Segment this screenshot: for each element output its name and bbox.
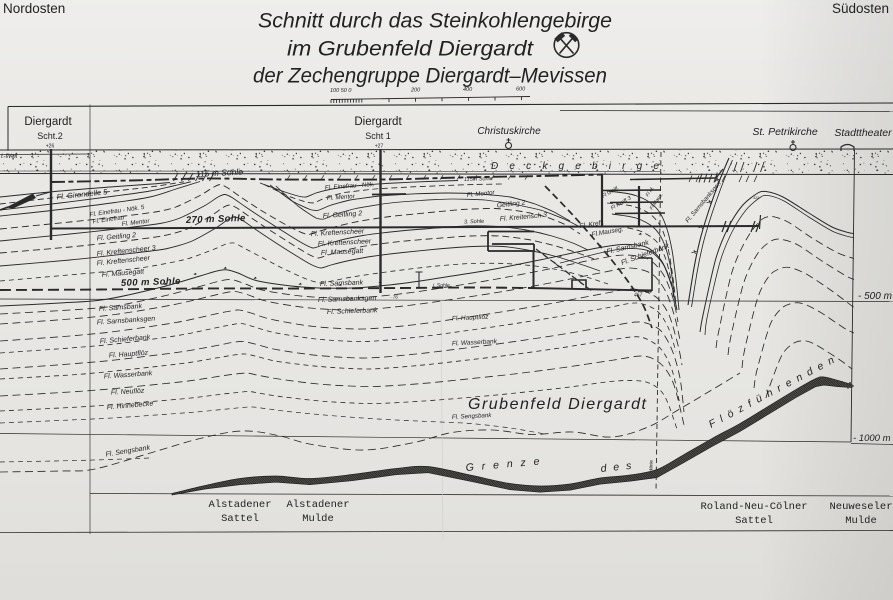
svg-text:Roland-Neu-Cölner: Roland-Neu-Cölner [700,501,807,513]
svg-text:600: 600 [516,87,526,93]
svg-text:Sattel: Sattel [221,513,259,525]
svg-text:l. Well: l. Well [1,154,18,160]
svg-text:400: 400 [463,87,473,93]
svg-text:i. Sohle: i. Sohle [433,283,450,289]
svg-text:- 1000 m: - 1000 m [853,433,891,444]
svg-text:- 76: - 76 [390,295,398,300]
svg-text:der Zechengruppe Diergardt–M: der Zechengruppe Diergardt–Mevissen [253,65,607,88]
svg-text:Nordosten: Nordosten [3,1,65,16]
svg-text:- 500 m: - 500 m [858,291,892,302]
svg-text:111: 111 [753,195,759,200]
svg-text:Alstadener: Alstadener [286,499,349,511]
svg-text:Scht 1: Scht 1 [365,131,391,141]
svg-text:Mulde: Mulde [302,513,334,525]
svg-text:Sattel: Sattel [735,515,773,527]
svg-text:141: 141 [645,289,652,294]
svg-text:270 m Sohle: 270 m Sohle [185,213,247,226]
svg-text:500 m Sohle: 500 m Sohle [121,276,182,289]
svg-text:Stadttheater: Stadttheater [834,127,892,139]
svg-text:im Grubenfeld Diergardt: im Grubenfeld Diergardt [287,38,534,61]
svg-text:Diergardt: Diergardt [24,116,72,128]
svg-text:+27: +27 [375,144,384,150]
svg-text:200: 200 [410,88,421,94]
svg-text:Schnitt durch das Steinkohl: Schnitt durch das Steinkohlengebirge [258,10,612,33]
svg-text:Christuskirche: Christuskirche [477,126,541,137]
svg-text:Scht.2: Scht.2 [37,131,63,141]
svg-text:100 50 0: 100 50 0 [330,88,352,94]
svg-text:115m Sohle: 115m Sohle [464,176,493,183]
svg-text:Alstadener: Alstadener [208,499,271,511]
svg-text:+26: +26 [46,144,55,150]
svg-text:D e c k g e b i r g e: D e c k g e b i r g e [491,161,663,172]
svg-text:Mulde: Mulde [845,515,877,527]
svg-text:St. Petrikirche: St. Petrikirche [752,126,818,138]
svg-text:Diergardt: Diergardt [354,116,402,128]
svg-text:3. Sohle: 3. Sohle [464,219,484,226]
svg-text:Neuweseler: Neuweseler [829,501,892,513]
svg-text:Grubenfeld Diergardt: Grubenfeld Diergardt [468,396,647,413]
svg-text:Südosten: Südosten [832,1,889,16]
